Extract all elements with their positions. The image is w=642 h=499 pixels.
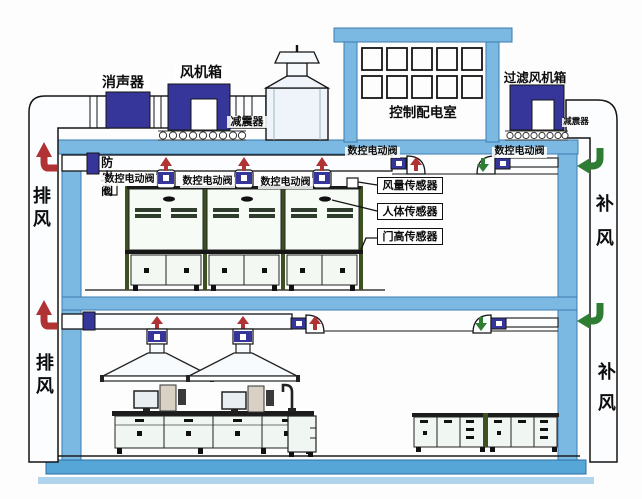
computer-workstation xyxy=(134,385,186,411)
lab-bench-right xyxy=(412,413,559,452)
makeup-air-label: 补风 xyxy=(593,194,612,262)
exhaust-stack xyxy=(266,45,328,140)
fume-hood xyxy=(203,186,285,291)
shock-absorbers-right xyxy=(505,131,568,140)
computer-workstation xyxy=(222,386,274,412)
fan-box-label: 风机箱 xyxy=(174,66,228,81)
silencer-label: 消声器 xyxy=(97,76,149,91)
fume-hood xyxy=(281,186,363,291)
shock-absorber-label: 减震器 xyxy=(227,116,267,128)
nc-valve-label: 数控电动阀 xyxy=(258,178,313,189)
exhaust-air-label: 排风 xyxy=(30,186,49,232)
sink-cabinet xyxy=(288,416,316,457)
control-room-windows xyxy=(362,48,482,98)
floor2-supply-elbow xyxy=(473,315,506,333)
fire-damper-icon xyxy=(87,153,99,174)
ventilation-diagram: 消声器 风机箱 减震器 控制配电室 过滤风机箱 减震器 防火阀 数控电动阀 数控… xyxy=(0,0,642,499)
nc-valve-label: 数控电动阀 xyxy=(102,175,157,186)
shock-absorbers-left xyxy=(158,131,246,140)
floor1-supply-elbow xyxy=(477,156,510,174)
makeup-air-label: 补风 xyxy=(595,362,614,424)
fire-damper-icon xyxy=(83,312,95,330)
nc-valve-label: 数控电动阀 xyxy=(345,147,400,158)
floor1-riser-elbow xyxy=(391,156,425,174)
lab-bench-left xyxy=(112,411,314,454)
filter-fan-box-label: 过滤风机箱 xyxy=(499,71,571,84)
sensor-device xyxy=(347,178,358,188)
fan-box xyxy=(168,84,230,130)
exhaust-air-label: 排风 xyxy=(33,353,52,399)
nc-valve-label: 数控电动阀 xyxy=(180,177,235,188)
muffler-box xyxy=(106,92,150,128)
control-room xyxy=(334,28,512,142)
filter-fan-box xyxy=(510,85,564,130)
door-height-sensor-label: 门高传感器 xyxy=(377,228,443,245)
body-sensor-label: 人体传感器 xyxy=(377,203,443,220)
floor2-riser-elbow xyxy=(291,315,324,333)
sink-faucet-icon xyxy=(283,385,296,412)
air-volume-sensor-label: 风量传感器 xyxy=(377,177,443,194)
nc-valve-label: 数控电动阀 xyxy=(492,147,547,158)
control-room-label: 控制配电室 xyxy=(381,106,465,120)
fume-hood xyxy=(125,186,207,291)
shock-absorber-label: 减震器 xyxy=(562,118,590,127)
